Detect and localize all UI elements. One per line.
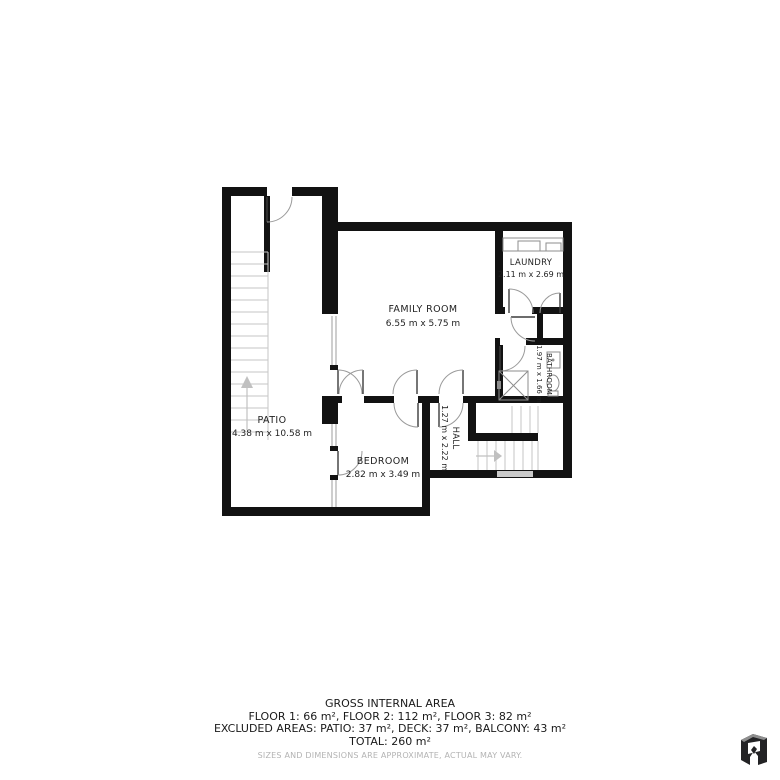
room-label-hall: HALL 1.27 m x 2.22 m — [440, 405, 460, 471]
summary-excluded: EXCLUDED AREAS: PATIO: 37 m², DECK: 37 m… — [0, 723, 780, 736]
summary-total: TOTAL: 260 m² — [0, 736, 780, 749]
room-name: LAUNDRY — [510, 258, 553, 268]
summary-title: GROSS INTERNAL AREA — [0, 698, 780, 711]
room-dims: 6.55 m x 5.75 m — [386, 319, 460, 329]
room-dims: 1.97 m x 1.66 m — [535, 345, 543, 403]
room-name: HALL — [450, 427, 460, 450]
room-dims: 2.82 m x 3.49 m — [346, 470, 420, 480]
room-dims: 2.11 m x 2.69 m — [498, 270, 564, 279]
floorplan-page: PATIO 4.38 m x 10.58 m FAMILY ROOM 6.55 … — [0, 0, 780, 780]
floor-plan: PATIO 4.38 m x 10.58 m FAMILY ROOM 6.55 … — [0, 0, 780, 780]
stairwell-window — [497, 471, 533, 477]
room-label-patio: PATIO 4.38 m x 10.58 m — [232, 415, 312, 439]
room-label-bathroom: BATHROOM 1.97 m x 1.66 m — [535, 345, 553, 403]
area-summary: GROSS INTERNAL AREA FLOOR 1: 66 m², FLOO… — [0, 698, 780, 763]
room-label-laundry: LAUNDRY 2.11 m x 2.69 m — [498, 258, 564, 279]
stairs-direction-arrow — [476, 450, 502, 462]
room-name: BEDROOM — [357, 456, 409, 467]
summary-disclaimer: SIZES AND DIMENSIONS ARE APPROXIMATE, AC… — [0, 750, 780, 763]
brand-logo-icon — [740, 733, 768, 765]
room-dims: 4.38 m x 10.58 m — [232, 429, 312, 439]
room-name: PATIO — [258, 415, 287, 426]
room-label-bedroom: BEDROOM 2.82 m x 3.49 m — [346, 456, 420, 480]
room-name: FAMILY ROOM — [388, 304, 457, 315]
room-label-family-room: FAMILY ROOM 6.55 m x 5.75 m — [386, 304, 460, 329]
staircase-upper-left — [231, 252, 268, 440]
room-name: BATHROOM — [545, 353, 553, 395]
room-dims: 1.27 m x 2.22 m — [440, 405, 449, 471]
laundry-appliances — [503, 238, 563, 251]
